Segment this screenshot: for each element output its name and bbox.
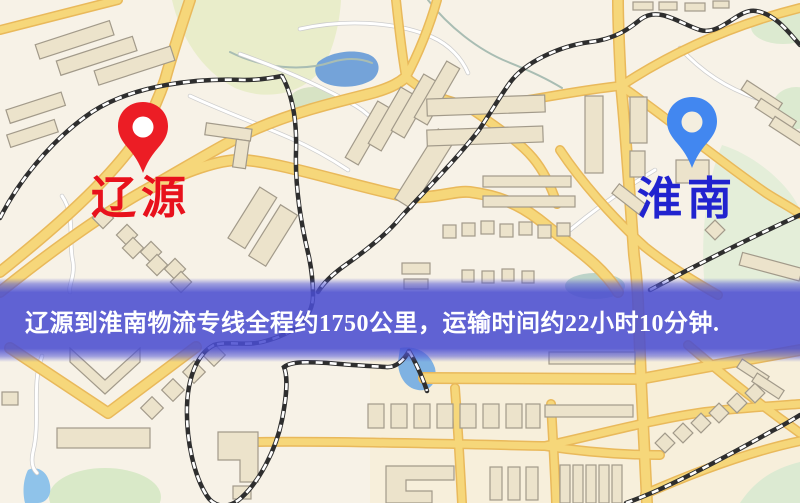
destination-pin-icon: [666, 96, 718, 170]
route-info-text: 辽源到淮南物流专线全程约1750公里，运输时间约22小时10分钟.: [0, 303, 720, 338]
origin-marker: [117, 101, 169, 175]
destination-marker: [666, 96, 718, 170]
destination-label: 淮南: [637, 177, 737, 222]
route-info-banner: 辽源到淮南物流专线全程约1750公里，运输时间约22小时10分钟.: [0, 278, 800, 362]
origin-pin-icon: [117, 101, 169, 175]
destination-pin-hole: [682, 112, 703, 133]
route-map-image: 辽源 淮南 辽源到淮南物流专线全程约1750公里，运输时间约22小时10分钟.: [0, 0, 800, 503]
origin-label: 辽源: [91, 176, 191, 221]
origin-pin-hole: [133, 117, 154, 138]
map-background: [0, 0, 800, 503]
